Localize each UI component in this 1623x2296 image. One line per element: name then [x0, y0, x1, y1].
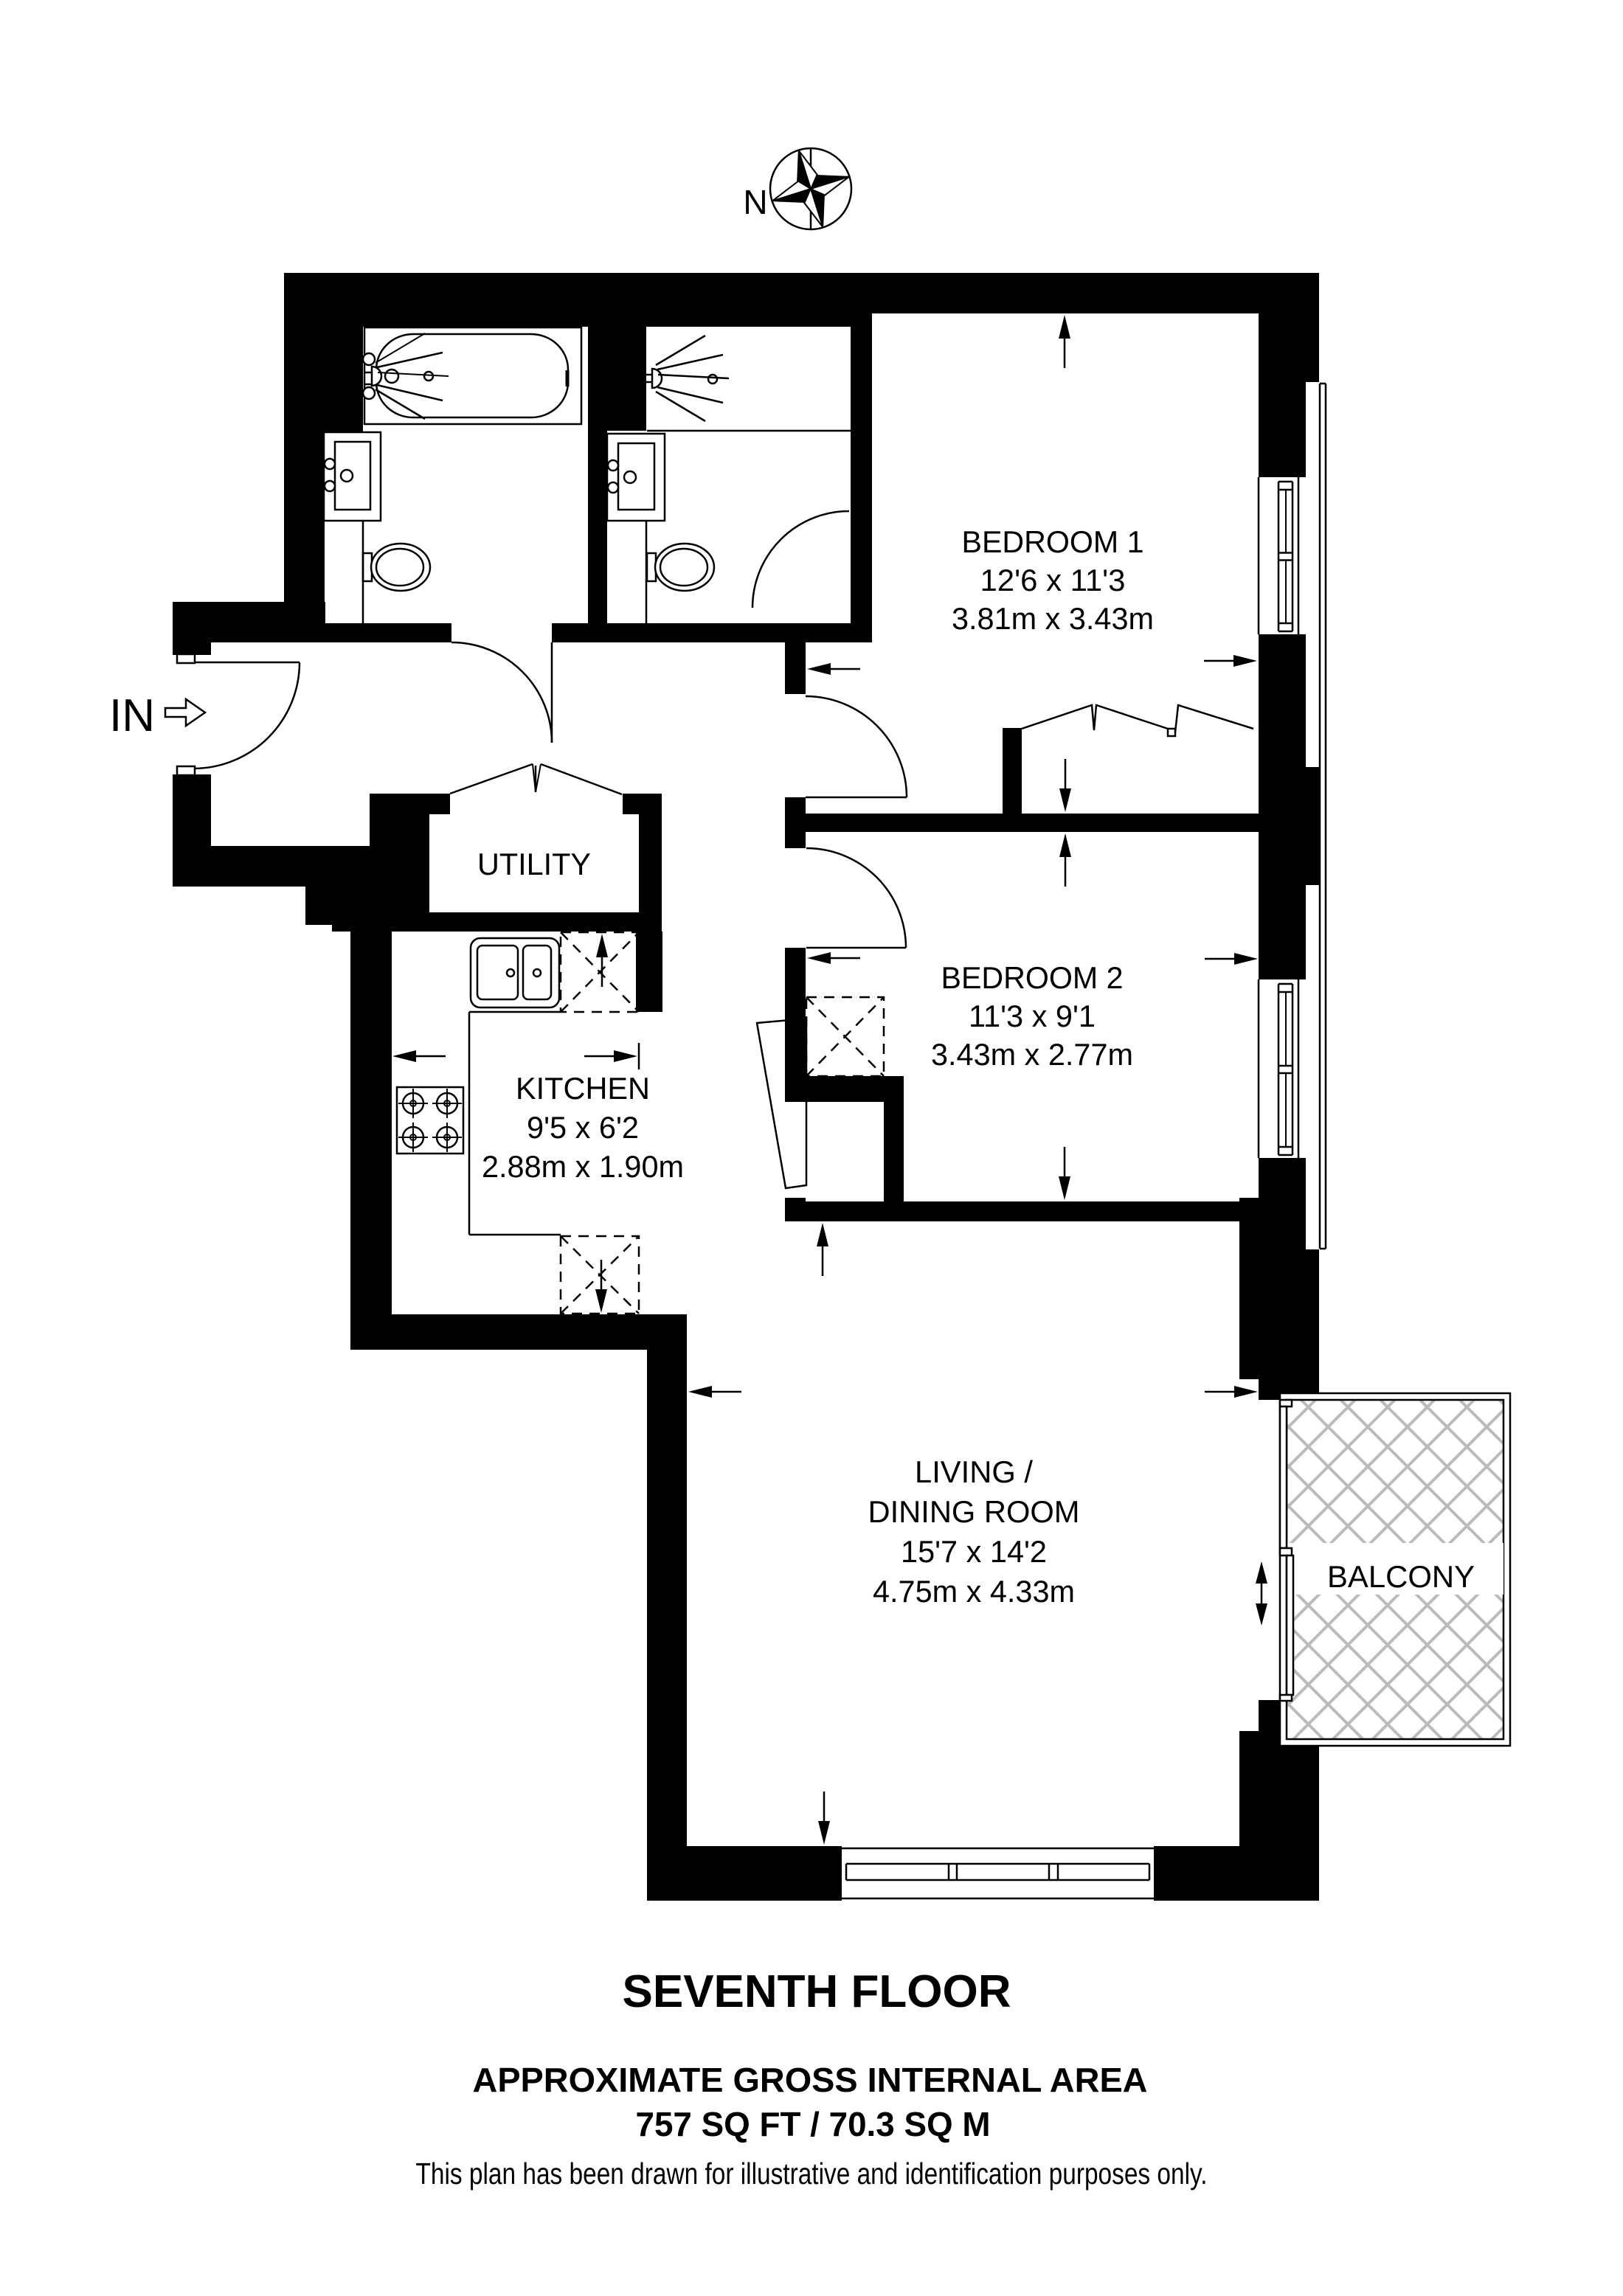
svg-text:2.88m x 1.90m: 2.88m x 1.90m [482, 1149, 684, 1184]
svg-text:BALCONY: BALCONY [1327, 1559, 1475, 1594]
svg-text:UTILITY: UTILITY [477, 847, 591, 881]
svg-text:BEDROOM 2: BEDROOM 2 [941, 960, 1124, 995]
svg-text:IN: IN [109, 690, 155, 741]
svg-text:LIVING /: LIVING / [915, 1454, 1033, 1489]
svg-text:3.81m x 3.43m: 3.81m x 3.43m [952, 601, 1154, 636]
svg-text:11'3 x 9'1: 11'3 x 9'1 [969, 999, 1096, 1033]
svg-text:9'5 x 6'2: 9'5 x 6'2 [527, 1110, 639, 1145]
svg-text:3.43m x 2.77m: 3.43m x 2.77m [931, 1037, 1133, 1072]
svg-text:APPROXIMATE GROSS INTERNAL ARE: APPROXIMATE GROSS INTERNAL AREA [473, 2061, 1148, 2099]
svg-text:N: N [743, 183, 767, 221]
svg-text:KITCHEN: KITCHEN [516, 1071, 650, 1106]
svg-text:This plan has been drawn for i: This plan has been drawn for illustrativ… [416, 2157, 1208, 2191]
svg-text:757 SQ FT / 70.3 SQ M: 757 SQ FT / 70.3 SQ M [636, 2105, 991, 2143]
svg-text:4.75m x 4.33m: 4.75m x 4.33m [873, 1574, 1075, 1609]
svg-text:12'6 x 11'3: 12'6 x 11'3 [980, 563, 1126, 597]
svg-text:BEDROOM 1: BEDROOM 1 [962, 524, 1144, 559]
svg-text:DINING ROOM: DINING ROOM [868, 1494, 1080, 1529]
svg-text:SEVENTH FLOOR: SEVENTH FLOOR [623, 1966, 1011, 2017]
svg-text:15'7 x 14'2: 15'7 x 14'2 [901, 1534, 1047, 1569]
